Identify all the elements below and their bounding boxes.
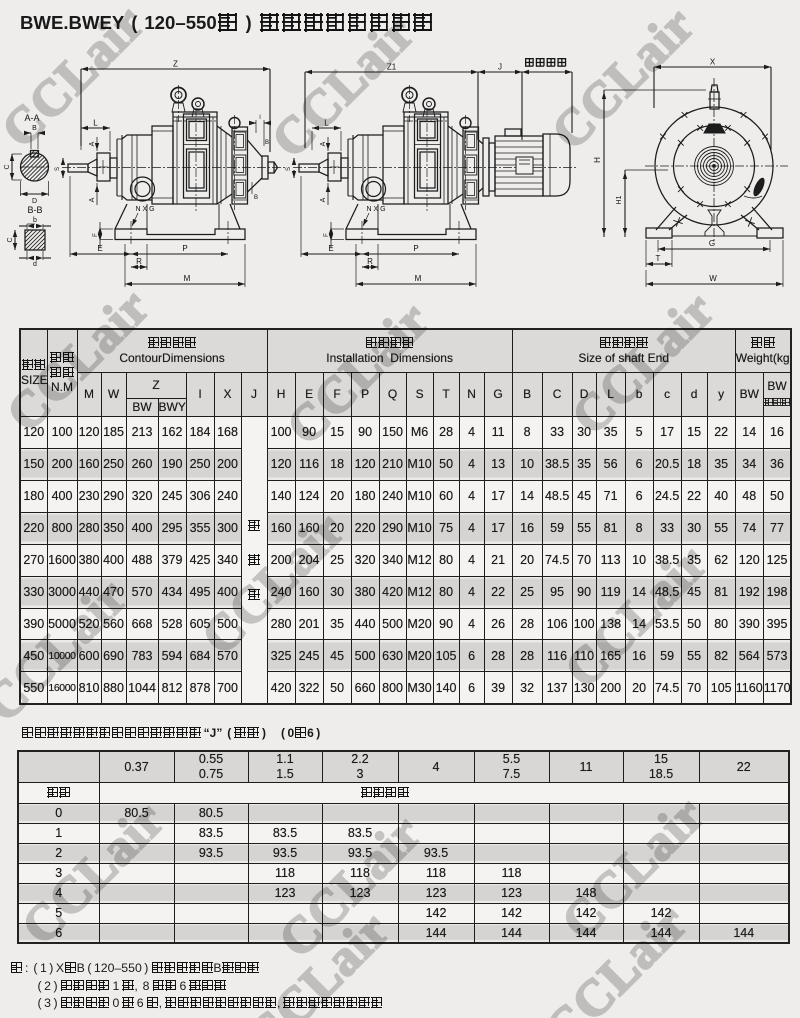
svg-text:b: b bbox=[33, 217, 37, 224]
svg-text:E: E bbox=[328, 244, 333, 253]
svg-text:N X G: N X G bbox=[135, 206, 154, 213]
svg-text:W: W bbox=[709, 274, 717, 283]
svg-text:R: R bbox=[367, 257, 373, 266]
svg-text:M: M bbox=[184, 274, 191, 283]
svg-text:A: A bbox=[89, 197, 96, 202]
svg-text:d: d bbox=[33, 261, 37, 268]
svg-text:E: E bbox=[97, 244, 102, 253]
svg-text:F: F bbox=[93, 233, 99, 237]
svg-text:G: G bbox=[709, 239, 715, 248]
svg-text:R: R bbox=[136, 257, 142, 266]
svg-text:B: B bbox=[265, 140, 269, 146]
svg-text:A-A: A-A bbox=[24, 113, 39, 123]
svg-text:P: P bbox=[182, 244, 187, 253]
svg-text:B-B: B-B bbox=[27, 205, 42, 215]
svg-text:F: F bbox=[324, 233, 330, 237]
svg-text:N X G: N X G bbox=[366, 206, 385, 213]
svg-text:P: P bbox=[413, 244, 418, 253]
svg-text:T: T bbox=[656, 254, 661, 263]
svg-text:C: C bbox=[7, 237, 14, 242]
svg-text:Z1: Z1 bbox=[387, 63, 397, 72]
svg-text:H: H bbox=[593, 157, 602, 163]
svg-text:C: C bbox=[4, 164, 11, 169]
svg-text:A: A bbox=[320, 141, 327, 146]
svg-text:J: J bbox=[498, 63, 502, 72]
svg-text:S: S bbox=[286, 167, 292, 171]
svg-text:A: A bbox=[320, 197, 327, 202]
svg-text:A: A bbox=[89, 141, 96, 146]
svg-text:Z: Z bbox=[173, 60, 178, 69]
svg-text:S: S bbox=[55, 167, 61, 171]
svg-text:B: B bbox=[32, 125, 37, 132]
svg-text:B: B bbox=[254, 195, 258, 201]
svg-text:H1: H1 bbox=[616, 195, 623, 204]
svg-text:X: X bbox=[710, 58, 716, 67]
svg-text:D: D bbox=[32, 198, 37, 205]
svg-text:L: L bbox=[324, 119, 329, 128]
svg-text:l: l bbox=[259, 115, 260, 121]
svg-text:M: M bbox=[415, 274, 422, 283]
svg-text:L: L bbox=[93, 119, 98, 128]
